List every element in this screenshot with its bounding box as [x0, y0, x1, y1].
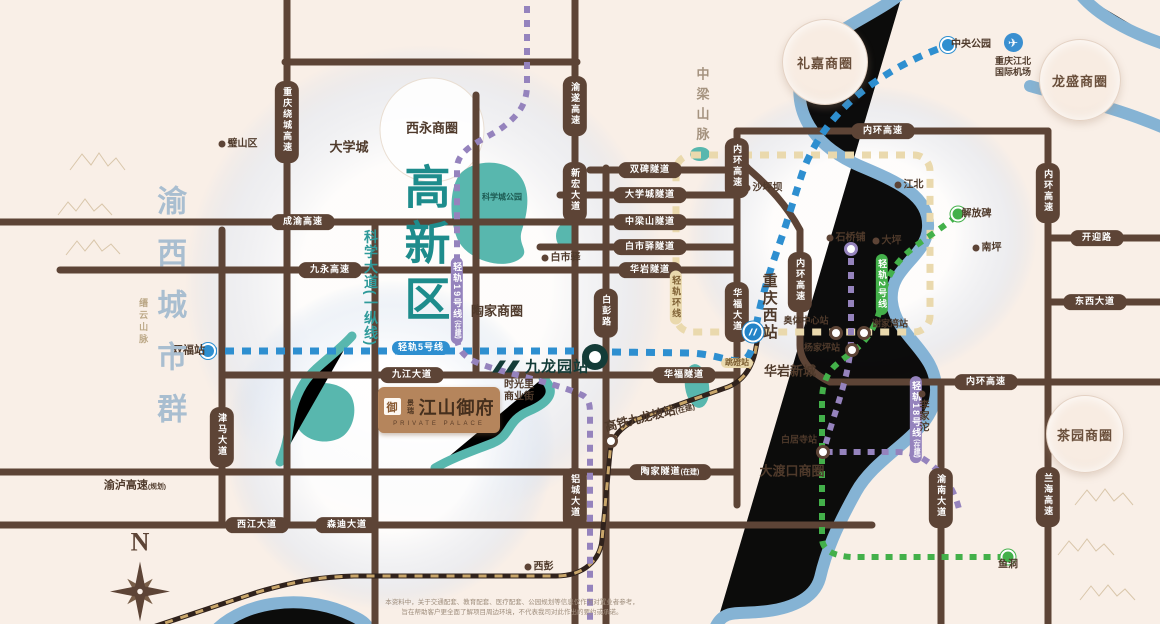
road-label: 成渝高速: [271, 214, 335, 230]
road-label: 九永高速: [298, 262, 362, 278]
business-district-circle: 礼嘉商圈: [782, 19, 868, 105]
road-label: 大学城隧道: [613, 187, 687, 203]
map-text: 科学大道(一纵线): [363, 230, 379, 346]
road-label: 西江大道: [225, 517, 289, 533]
disclaimer: 本资料中，关于交通配套、教育配套、医疗配套、公园规划等信息仅作为对置业者参考， …: [385, 598, 639, 618]
road-label: 渝遂高速: [563, 76, 587, 136]
place-dot: 石桥铺: [827, 235, 834, 242]
jiulongyuan-station-label: 九龙园站: [525, 356, 589, 377]
map-text: 高新区: [398, 163, 451, 331]
map-text: 时光里商业街: [504, 380, 534, 403]
road-label: 内环高速: [851, 123, 915, 139]
road-label: 白市驿隧道: [613, 239, 687, 255]
map-text: 大学城: [329, 141, 368, 156]
road-label: 内环高速: [954, 374, 1018, 390]
road-label: 华福隧道: [652, 367, 716, 383]
metro-line-label: 轻轨5号线: [392, 337, 450, 355]
road-label: 白彭路: [594, 289, 618, 338]
project-seal-icon: 御: [384, 398, 401, 415]
metro-line-label: 轻轨环线: [670, 271, 682, 330]
compass-rose: N: [108, 528, 172, 624]
place-dot: 白市驿: [542, 255, 549, 262]
airport-label-line2: 国际机场: [995, 67, 1031, 78]
station-ring: 奥体中心站: [829, 326, 843, 340]
station-ring: 谢家湾站: [857, 326, 871, 340]
road-label: 新宏大道: [563, 162, 587, 222]
station-ring: 白居寺站: [816, 445, 830, 459]
road-label: 内环高速: [1036, 163, 1060, 223]
disclaimer-line1: 本资料中，关于交通配套、教育配套、医疗配套、公园规划等信息仅作为对置业者参考，: [385, 598, 639, 608]
map-text: 陶家商圈: [471, 305, 523, 320]
map-text: 渝泸高速(规划): [104, 480, 166, 493]
metro-logo-icon: [743, 322, 764, 343]
compass-north-label: N: [108, 528, 172, 558]
place-dot: 李家沱: [919, 391, 926, 398]
project-brand: 景瑞: [405, 399, 415, 415]
road-label: 内环高速: [788, 252, 812, 312]
road-label: 开迎路: [1070, 230, 1124, 246]
place-dot: 中央公园: [940, 37, 956, 53]
disclaimer-line2: 旨在帮助客户更全面了解项目周边环境，不代表我司对此作出的要约或承诺。: [385, 608, 639, 618]
metro-line-label: 跳磴站: [721, 352, 753, 370]
airport-label-line1: 重庆江北: [995, 56, 1031, 67]
project-subtitle: PRIVATE PALACE: [393, 421, 485, 427]
map-text: 华岩新城: [764, 365, 816, 380]
station-ring: 杨家坪站: [845, 343, 859, 357]
road-label: 陶家隧道(在建): [629, 464, 712, 480]
place-dot: 解放碑: [951, 207, 966, 222]
road-label: 津马大道: [210, 407, 234, 467]
road-label: 中梁山隧道: [613, 214, 687, 230]
label-layer: 重庆绕城高速渝遂高速新宏大道成渝高速九永高速双碑隧道大学城隧道中梁山隧道白市驿隧…: [0, 0, 1160, 624]
station-ring: [844, 242, 858, 256]
business-district-circle: 茶园商圈: [1046, 395, 1124, 473]
place-dot: 大坪: [873, 238, 880, 245]
place-dot: 江北: [895, 182, 902, 189]
map-text: 中梁山脉: [694, 67, 709, 147]
station-ring: [604, 434, 618, 448]
airport: ✈ 重庆江北 国际机场: [995, 33, 1031, 78]
real-estate-location-map: 重庆绕城高速渝遂高速新宏大道成渝高速九永高速双碑隧道大学城隧道中梁山隧道白市驿隧…: [0, 0, 1160, 624]
project-logo: 御 景瑞 江山御府 PRIVATE PALACE: [378, 387, 500, 433]
place-dot: 鱼洞: [1001, 550, 1016, 565]
crt-logo-icon: [491, 359, 521, 373]
business-district-circle: 龙盛商圈: [1039, 39, 1121, 121]
place-dot: 双福站: [200, 343, 216, 359]
road-label: 双碑隧道: [618, 162, 682, 178]
metro-line-label: 轻轨19号线(在建): [451, 257, 463, 349]
road-label: 兰海高速: [1036, 467, 1060, 527]
place-dot: 璧山区: [219, 141, 226, 148]
place-dot: 南坪: [973, 245, 980, 252]
road-label: 铝城大道: [563, 468, 587, 528]
compass-star-icon: [108, 560, 172, 624]
map-text: 高铁九龙坡站(在建): [604, 399, 696, 435]
map-text: 渝西城市群: [151, 185, 186, 445]
metro-line-label: 轻轨2号线: [876, 254, 888, 320]
map-text: 缙云山脉: [138, 298, 148, 346]
jiulongyuan-station: 九龙园站: [491, 356, 589, 377]
airplane-icon: ✈: [1003, 33, 1022, 52]
place-dot: 沙坪坝: [744, 185, 751, 192]
road-label: 九江大道: [380, 367, 444, 383]
road-label: 渝南大道: [929, 468, 953, 528]
map-text: 科学城公园: [482, 192, 522, 201]
map-text: 大渡口商圈: [759, 465, 824, 480]
place-dot: 西彭: [525, 564, 532, 571]
road-label: 森迪大道: [315, 517, 379, 533]
road-label: 重庆绕城高速: [275, 81, 299, 163]
road-label: 东西大道: [1063, 294, 1127, 310]
map-text: 西永商圈: [406, 122, 458, 137]
project-name: 江山御府: [419, 394, 495, 420]
